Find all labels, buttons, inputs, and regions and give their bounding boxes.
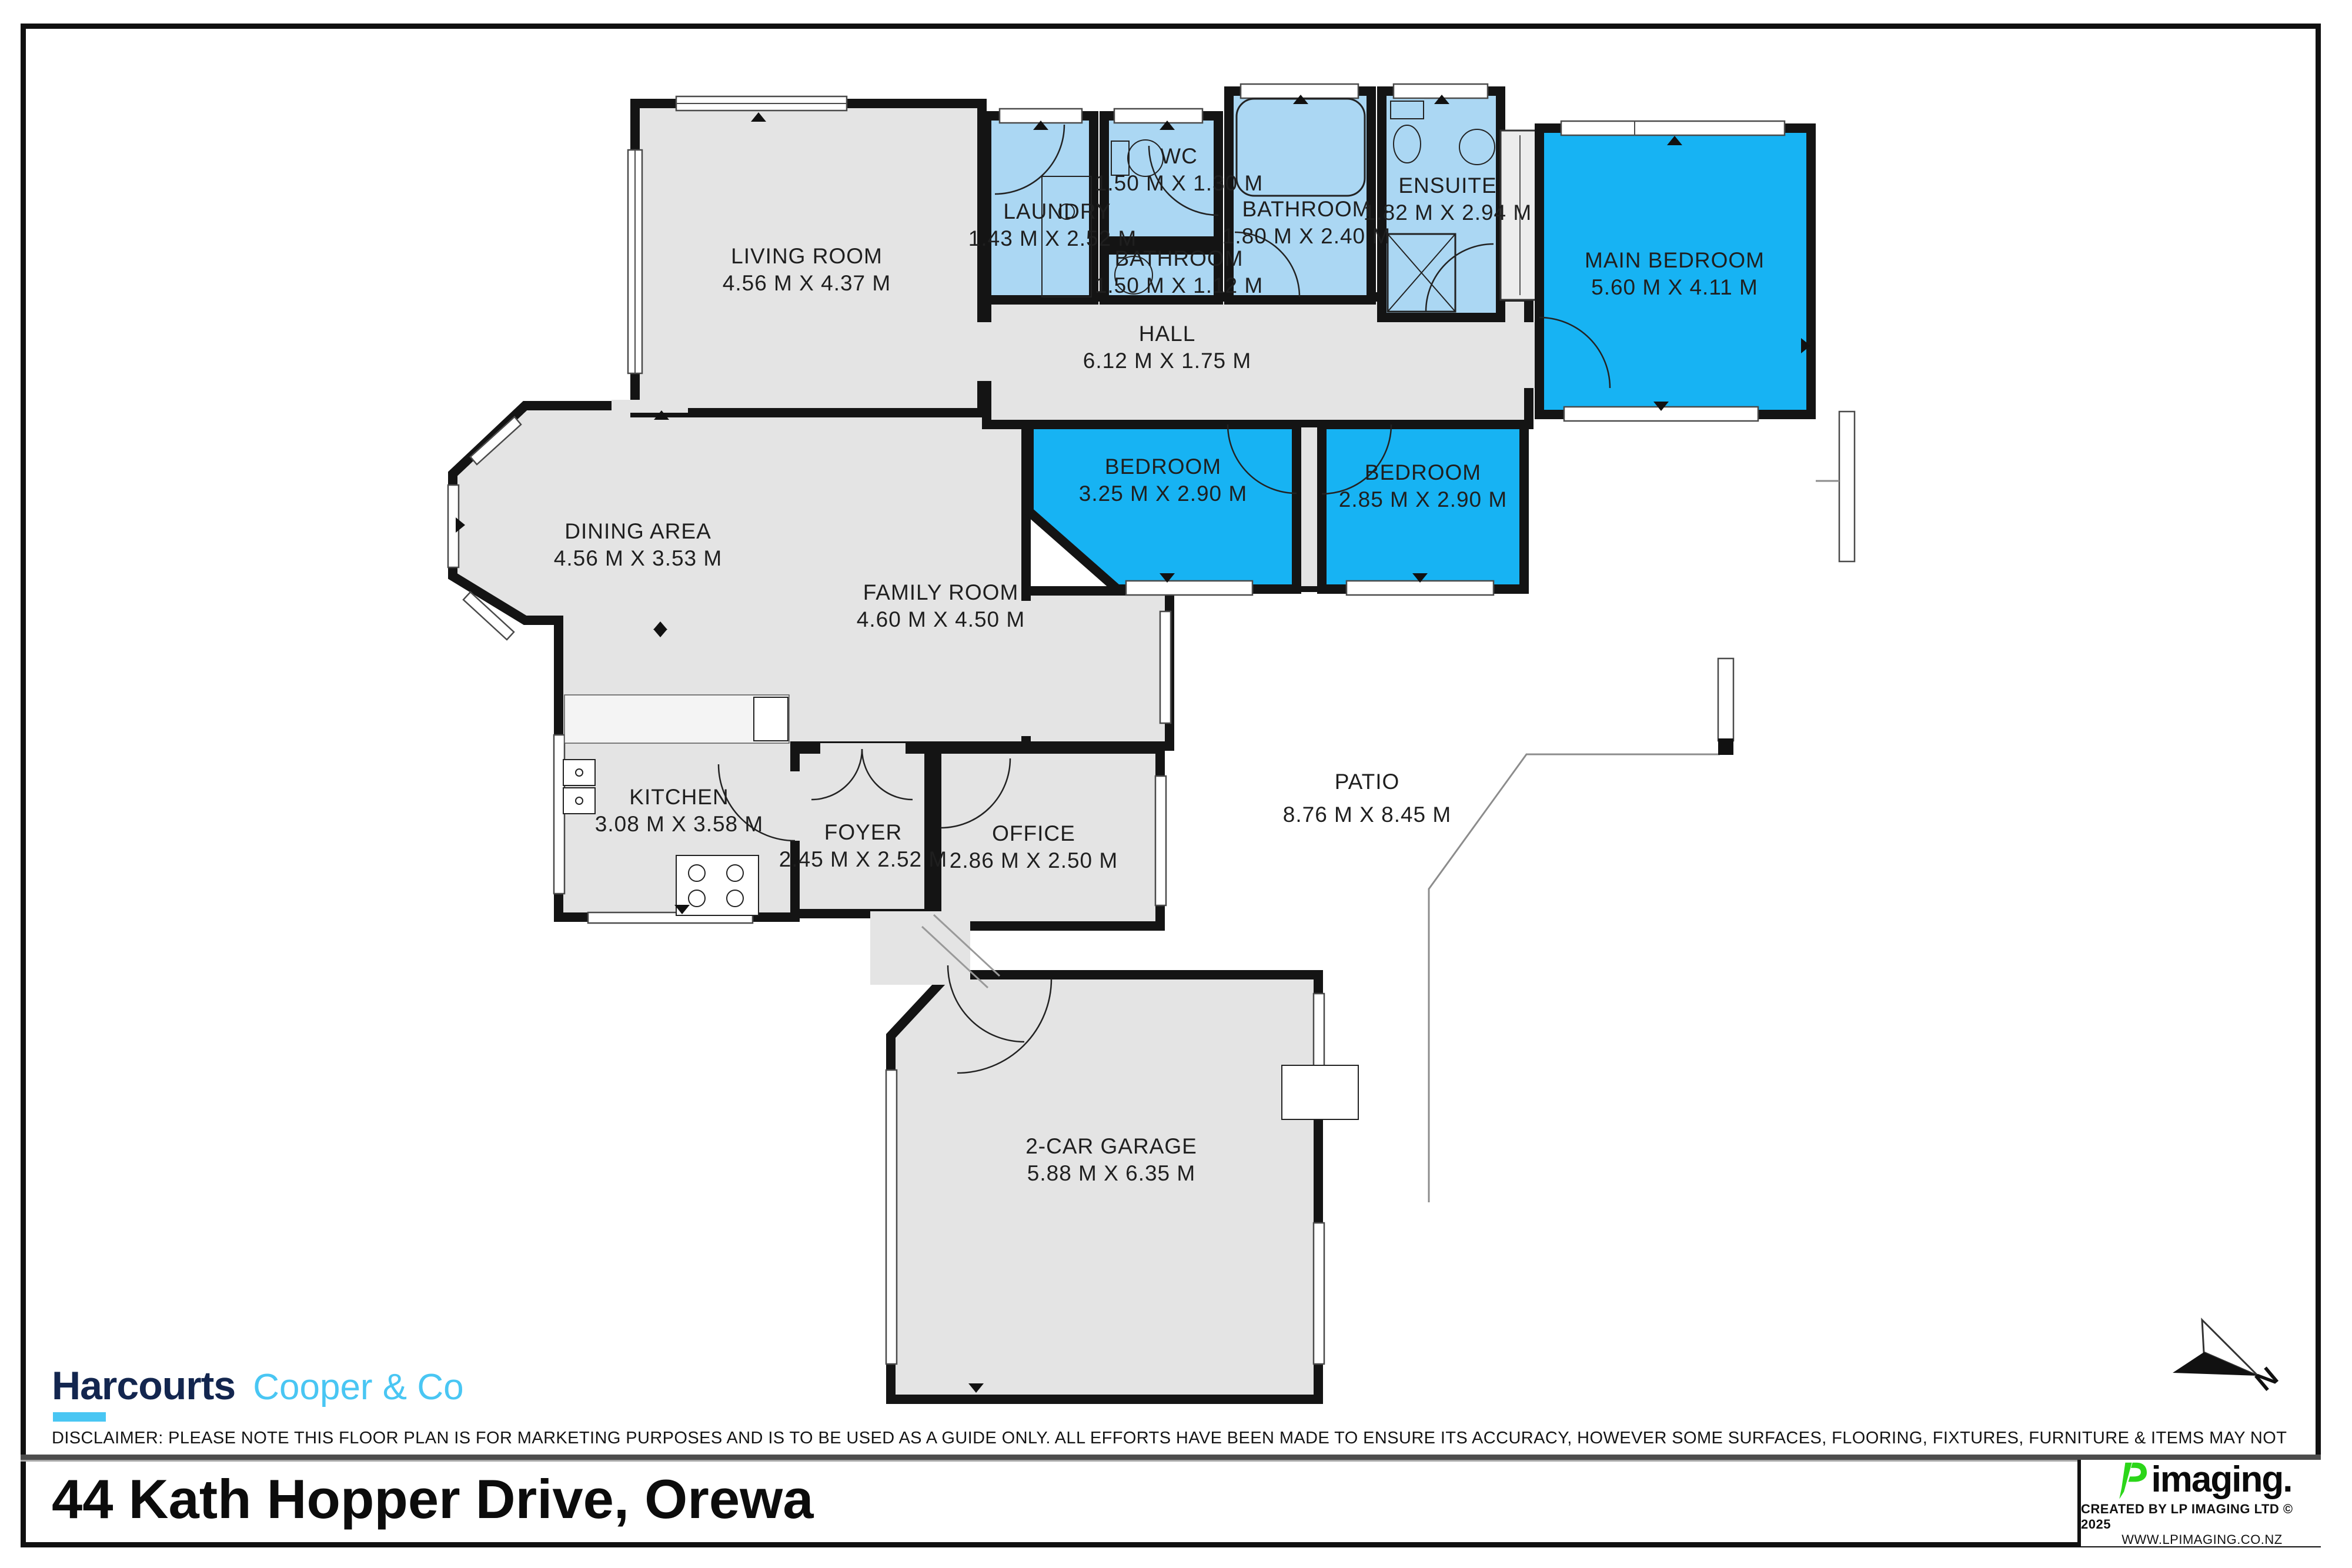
patio-label: PATIO	[1335, 770, 1400, 794]
bathroom2-label: BATHROOM	[1114, 246, 1243, 270]
dining-area-dims: 4.56 M X 3.53 M	[554, 546, 722, 570]
north-arrow-icon: N	[2173, 1320, 2284, 1397]
bedroom2-dims: 2.85 M X 2.90 M	[1339, 487, 1507, 511]
living-room-dims: 4.56 M X 4.37 M	[723, 271, 891, 295]
harcourts-logo-underline	[53, 1412, 106, 1422]
garage-shape	[891, 975, 1318, 1399]
bedroom2-label: BEDROOM	[1365, 460, 1481, 484]
garage-dims: 5.88 M X 6.35 M	[1027, 1161, 1195, 1185]
floorplan-page: N LIVING ROOM 4.56 M X 4.37 M DINING ARE…	[0, 0, 2352, 1568]
lp-credit-line2: WWW.LPIMAGING.CO.NZ	[2122, 1532, 2283, 1547]
disclaimer-text: DISCLAIMER: PLEASE NOTE THIS FLOOR PLAN …	[52, 1429, 2292, 1448]
wc-label: WC	[1160, 144, 1198, 168]
foyer-dims: 2.45 M X 2.52 M	[779, 847, 947, 871]
main-bedroom-dims: 5.60 M X 4.11 M	[1591, 275, 1758, 299]
lp-imaging-logo: imaging.	[2113, 1459, 2292, 1500]
lp-logo-text: imaging.	[2151, 1459, 2292, 1500]
main-bedroom-label: MAIN BEDROOM	[1585, 248, 1765, 272]
bedroom1-dims: 3.25 M X 2.90 M	[1079, 482, 1247, 506]
bedroom1-shape	[1029, 424, 1297, 589]
family-room-label: FAMILY ROOM	[863, 580, 1019, 604]
laundry-dims: 1.43 M X 2.52 M	[968, 226, 1137, 250]
entry-porch	[870, 911, 970, 985]
patio-dims: 8.76 M X 8.45 M	[1283, 803, 1451, 827]
harcourts-logo-secondary: Cooper & Co	[253, 1366, 463, 1408]
lp-credit-line1: CREATED BY LP IMAGING LTD © 2025	[2081, 1502, 2323, 1532]
garage-niche	[1282, 1065, 1358, 1119]
kitchen-label: KITCHEN	[629, 785, 729, 809]
footer-divider-shadow	[21, 1460, 2321, 1462]
family-room-dims: 4.60 M X 4.50 M	[857, 607, 1025, 631]
stove-icon	[676, 855, 759, 915]
fridge-icon	[754, 697, 788, 741]
wc-dims: 1.50 M X 1.30 M	[1095, 171, 1263, 195]
family-extension-shape	[1026, 591, 1170, 746]
garage-label: 2-CAR GARAGE	[1025, 1134, 1197, 1158]
lp-logo-icon	[2113, 1460, 2149, 1500]
harcourts-logo: Harcourts Cooper & Co	[52, 1363, 464, 1409]
office-dims: 2.86 M X 2.50 M	[950, 848, 1118, 872]
hall-label: HALL	[1139, 322, 1196, 346]
kitchen-dims: 3.08 M X 3.58 M	[595, 812, 763, 836]
harcourts-logo-primary: Harcourts	[52, 1363, 235, 1409]
hall-dims: 6.12 M X 1.75 M	[1083, 349, 1251, 373]
office-label: OFFICE	[992, 821, 1075, 845]
footer-divider	[21, 1455, 2321, 1460]
bathroom2-dims: 1.50 M X 1.12 M	[1095, 273, 1263, 297]
lp-imaging-credit: imaging. CREATED BY LP IMAGING LTD © 202…	[2077, 1460, 2323, 1546]
compass-n-label: N	[2249, 1360, 2284, 1396]
ensuite-dims: 1.82 M X 2.94 M	[1364, 200, 1532, 225]
property-address: 44 Kath Hopper Drive, Orewa	[52, 1467, 814, 1531]
foyer-label: FOYER	[824, 820, 902, 844]
dining-area-label: DINING AREA	[564, 519, 711, 543]
bathroom-dims: 1.80 M X 2.40 M	[1222, 224, 1391, 248]
ensuite-label: ENSUITE	[1398, 173, 1496, 198]
bedroom1-label: BEDROOM	[1105, 454, 1221, 479]
living-room-label: LIVING ROOM	[731, 244, 883, 268]
floorplan-drawing: N LIVING ROOM 4.56 M X 4.37 M DINING ARE…	[0, 0, 2352, 1568]
bathroom-label: BATHROOM	[1242, 197, 1371, 221]
laundry-label: LAUNDRY	[1003, 199, 1111, 223]
